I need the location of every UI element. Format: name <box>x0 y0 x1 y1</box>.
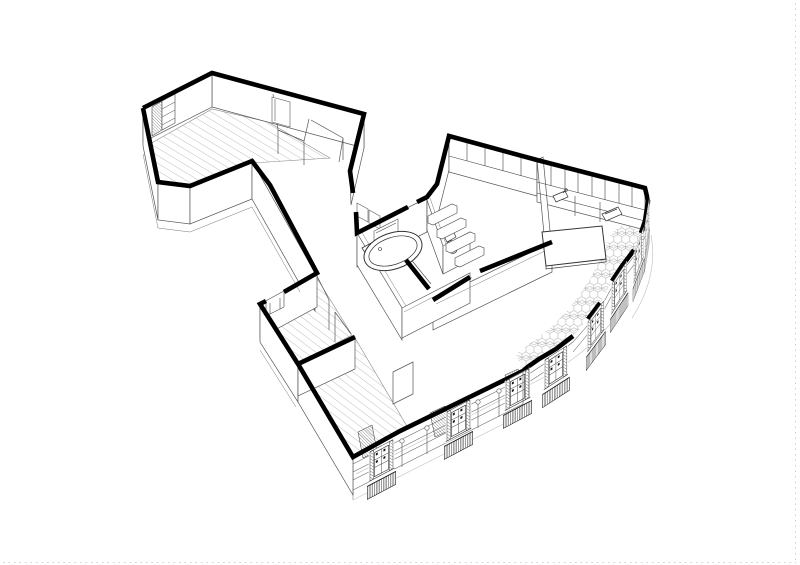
dining-table <box>542 226 606 269</box>
doorway-frame <box>272 97 290 127</box>
drawing-page <box>0 0 800 565</box>
page-border <box>3 3 796 563</box>
floor-plan-drawing <box>0 0 800 565</box>
